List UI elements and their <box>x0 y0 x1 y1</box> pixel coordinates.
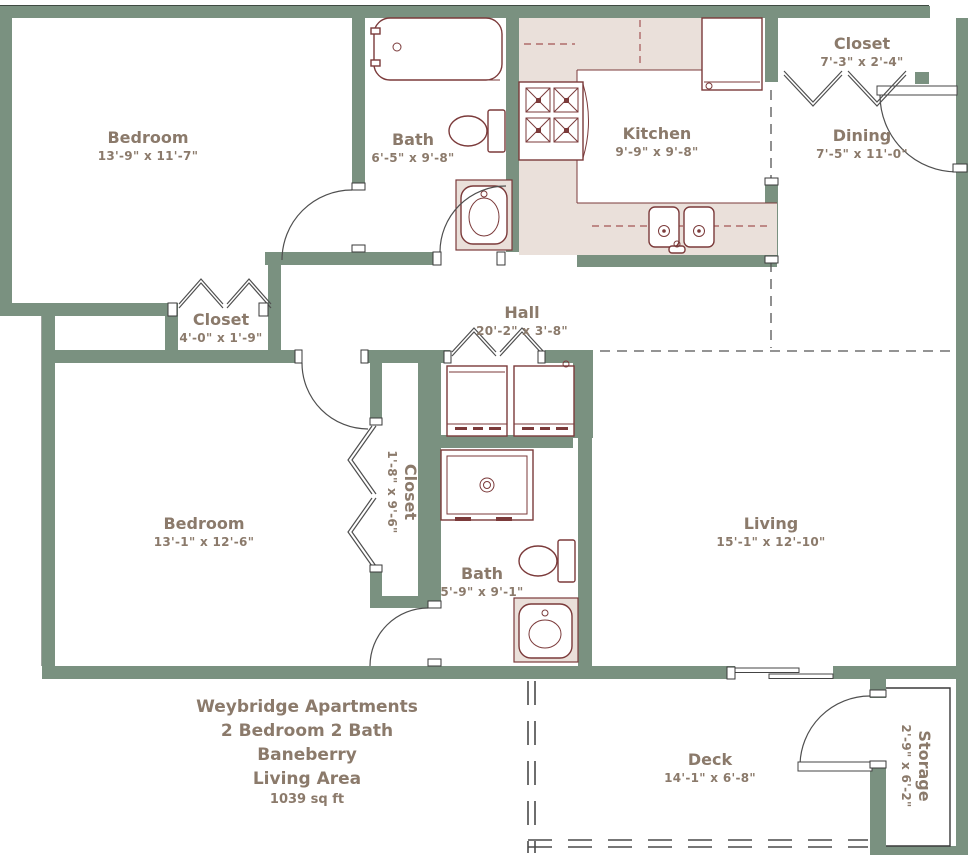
room-dims: 6'-5" x 9'-8" <box>371 151 454 167</box>
room-name: Bedroom <box>154 514 255 535</box>
room-dims: 15'-1" x 12'-10" <box>716 535 825 551</box>
title-block: Weybridge Apartments 2 Bedroom 2 Bath Ba… <box>196 695 418 809</box>
sliding-glass-door <box>735 668 833 679</box>
room-label-closet-entry: Closet 7'-3" x 2'-4" <box>820 34 903 70</box>
room-dims: 14'-1" x 6'-8" <box>664 771 756 787</box>
refrigerator <box>702 18 762 90</box>
unit-type: 2 Bedroom 2 Bath <box>196 719 418 743</box>
room-dims: 9'-9" x 9'-8" <box>615 145 698 161</box>
room-dims: 7'-3" x 2'-4" <box>820 55 903 71</box>
room-label-bath-1: Bath 6'-5" x 9'-8" <box>371 130 454 166</box>
room-name: Hall <box>476 303 568 324</box>
room-label-bath-2: Bath 5'-9" x 9'-1" <box>440 564 523 600</box>
room-dims: 7'-5" x 11'-0" <box>816 147 908 163</box>
room-dims: 1'-8" x 9'-6" <box>384 450 400 533</box>
dryer <box>514 361 574 436</box>
room-name: Living <box>716 514 825 535</box>
range <box>519 82 589 160</box>
washer <box>447 366 507 436</box>
toilet-bath2 <box>519 540 575 582</box>
room-name: Bedroom <box>98 128 199 149</box>
room-name: Closet <box>179 310 262 331</box>
room-dims: 13'-9" x 11'-7" <box>98 149 199 165</box>
room-label-closet-hall: Closet 4'-0" x 1'-9" <box>179 310 262 346</box>
room-label-deck: Deck 14'-1" x 6'-8" <box>664 750 756 786</box>
room-label-bedroom-1: Bedroom 13'-9" x 11'-7" <box>98 128 199 164</box>
area-value: 1039 sq ft <box>196 791 418 809</box>
room-name: Dining <box>816 126 908 147</box>
room-dims: 5'-9" x 9'-1" <box>440 585 523 601</box>
room-name: Bath <box>371 130 454 151</box>
room-name: Closet <box>399 450 420 533</box>
room-dims: 13'-1" x 12'-6" <box>154 535 255 551</box>
shower <box>441 450 533 521</box>
room-label-kitchen: Kitchen 9'-9" x 9'-8" <box>615 124 698 160</box>
room-label-closet-bedroom-2: Closet 1'-8" x 9'-6" <box>384 450 420 533</box>
pedestal-sink-bath1 <box>456 180 512 250</box>
area-label: Living Area <box>196 767 418 791</box>
floor-plan: Bedroom 13'-9" x 11'-7" Bath 6'-5" x 9'-… <box>0 0 968 855</box>
room-name: Bath <box>440 564 523 585</box>
bathtub <box>371 18 502 80</box>
room-label-living: Living 15'-1" x 12'-10" <box>716 514 825 550</box>
room-name: Storage <box>913 724 934 807</box>
room-dims: 2'-9" x 6'-2" <box>898 724 914 807</box>
pedestal-sink-bath2 <box>514 598 578 662</box>
room-label-bedroom-2: Bedroom 13'-1" x 12'-6" <box>154 514 255 550</box>
room-name: Closet <box>820 34 903 55</box>
storage-door-leaf <box>798 762 872 771</box>
room-name: Kitchen <box>615 124 698 145</box>
room-label-dining: Dining 7'-5" x 11'-0" <box>816 126 908 162</box>
plan-name: Baneberry <box>196 743 418 767</box>
room-dims: 20'-2" x 3'-8" <box>476 324 568 340</box>
room-label-storage: Storage 2'-9" x 6'-2" <box>898 724 934 807</box>
toilet-bath1 <box>449 110 505 152</box>
room-name: Deck <box>664 750 756 771</box>
room-label-hall: Hall 20'-2" x 3'-8" <box>476 303 568 339</box>
property-name: Weybridge Apartments <box>196 695 418 719</box>
room-dims: 4'-0" x 1'-9" <box>179 331 262 347</box>
